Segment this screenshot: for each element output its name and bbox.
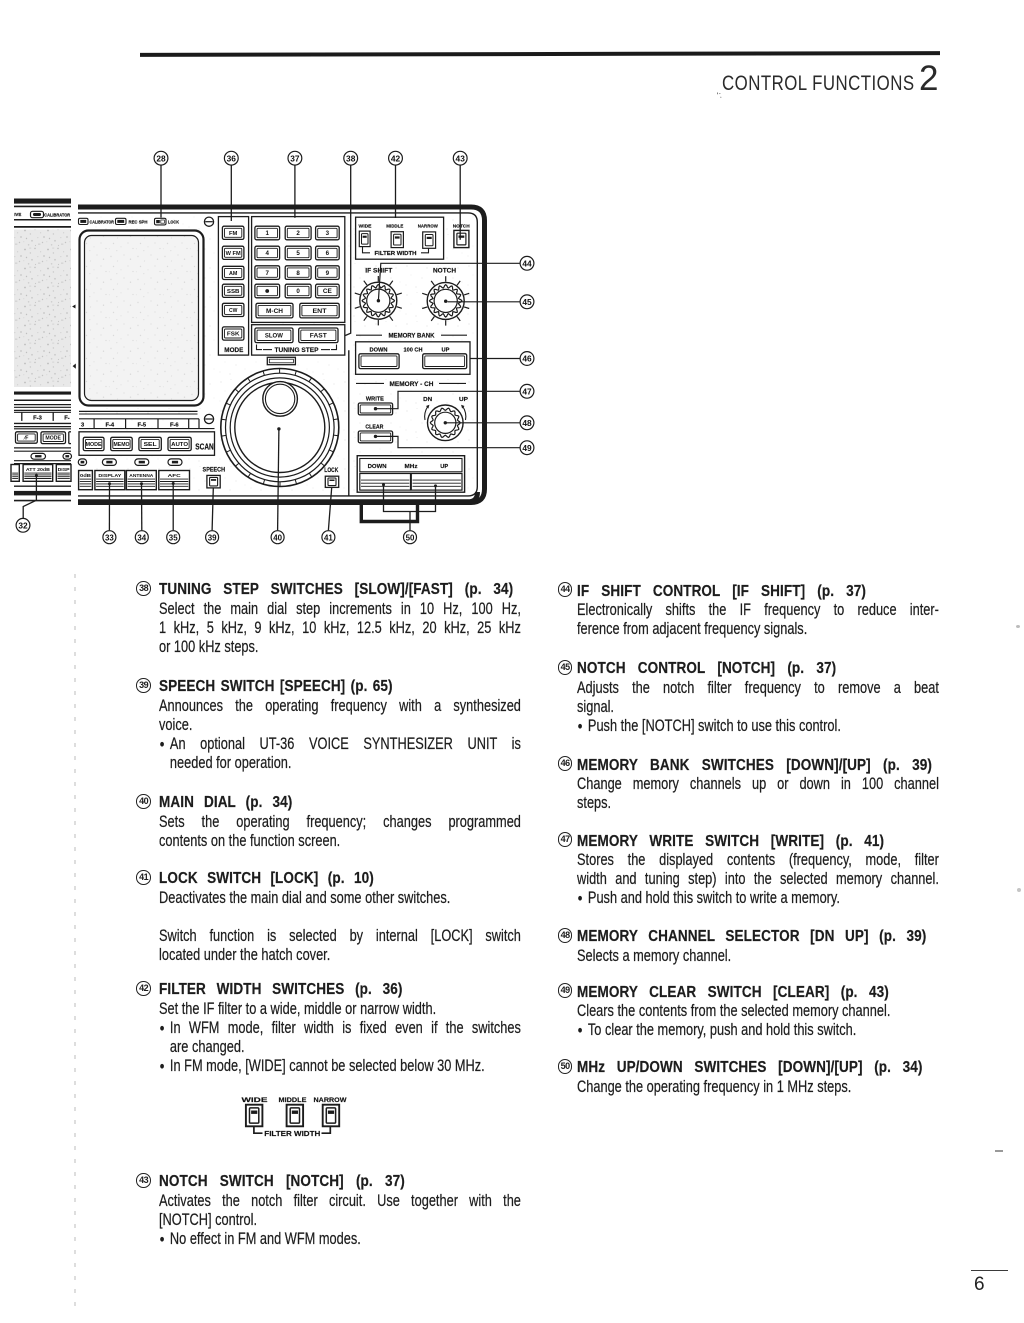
svg-text:DISP: DISP [58, 467, 70, 472]
svg-text:CLEAR: CLEAR [365, 425, 384, 431]
svg-text:49: 49 [522, 443, 532, 453]
svg-text:MIDDLE: MIDDLE [279, 1097, 307, 1104]
svg-text:38: 38 [346, 153, 356, 163]
svg-text:FILTER WIDTH: FILTER WIDTH [375, 251, 417, 257]
svg-text:48: 48 [522, 418, 532, 428]
svg-text:MODE: MODE [86, 442, 102, 448]
svg-text:33: 33 [105, 532, 114, 542]
svg-text:MEMO: MEMO [114, 442, 130, 448]
svg-text:AUTO: AUTO [171, 442, 188, 448]
svg-text:1: 1 [265, 230, 269, 237]
svg-text:34: 34 [137, 532, 146, 542]
svg-text:FM: FM [229, 231, 238, 237]
svg-text:50: 50 [406, 532, 415, 542]
svg-text:8: 8 [296, 270, 300, 277]
svg-text:W FM: W FM [226, 251, 241, 257]
svg-text:ANTENNA: ANTENNA [129, 473, 154, 479]
svg-text:0dB: 0dB [80, 473, 92, 479]
svg-text:TUNING STEP: TUNING STEP [275, 347, 319, 354]
svg-text:IF SHIFT: IF SHIFT [365, 267, 392, 274]
svg-text:CE: CE [323, 288, 332, 295]
svg-text:DISPLAY: DISPLAY [98, 473, 122, 479]
svg-text:IVE: IVE [14, 212, 21, 217]
svg-text:45: 45 [522, 297, 532, 307]
svg-text:F-4: F-4 [105, 423, 114, 429]
svg-text:36: 36 [227, 153, 237, 163]
svg-text:DOWN: DOWN [370, 348, 388, 354]
svg-text:SEL: SEL [144, 442, 158, 448]
svg-text:WIDE: WIDE [242, 1097, 269, 1104]
svg-text:SCAN: SCAN [195, 442, 214, 451]
svg-text:MODE: MODE [224, 347, 244, 354]
svg-text:41: 41 [324, 532, 333, 542]
svg-text:6: 6 [326, 250, 330, 257]
svg-text:MEMORY BANK: MEMORY BANK [389, 333, 435, 340]
svg-text:0: 0 [296, 288, 300, 295]
svg-text:100 CH: 100 CH [404, 348, 423, 354]
svg-text:2: 2 [296, 230, 300, 237]
svg-text:3: 3 [326, 230, 330, 237]
svg-text:SLOW: SLOW [265, 334, 283, 340]
svg-text:47: 47 [522, 386, 532, 396]
svg-text:4: 4 [265, 250, 269, 257]
svg-text:5: 5 [296, 250, 300, 257]
svg-text:M-CH: M-CH [266, 309, 283, 315]
svg-text:UP: UP [440, 464, 448, 470]
svg-text:NOTCH: NOTCH [453, 223, 471, 229]
svg-text:39: 39 [208, 532, 217, 542]
svg-text:CALIBRATOR: CALIBRATOR [44, 212, 71, 217]
svg-text:ATT 20dB: ATT 20dB [26, 467, 51, 472]
svg-text:28: 28 [156, 153, 166, 163]
svg-text:AM: AM [229, 271, 238, 277]
svg-text:F-3: F-3 [33, 415, 42, 421]
svg-text:LOCK: LOCK [324, 467, 338, 474]
svg-text:WIDE: WIDE [359, 223, 373, 229]
svg-text:REC SPH: REC SPH [129, 220, 148, 225]
svg-text:35: 35 [169, 532, 178, 542]
svg-text:NARROW: NARROW [418, 223, 438, 229]
svg-text:46: 46 [522, 354, 532, 364]
svg-text:UP: UP [442, 348, 450, 354]
svg-text:42: 42 [391, 153, 401, 163]
svg-text:37: 37 [290, 153, 300, 163]
svg-text:F-: F- [64, 415, 70, 421]
svg-text:SSB: SSB [227, 289, 240, 295]
svg-text:CALIBRATOR: CALIBRATOR [90, 220, 115, 225]
svg-text:MODE: MODE [45, 436, 61, 442]
svg-text:⁄F: ⁄F [23, 435, 28, 441]
svg-text:43: 43 [456, 153, 466, 163]
svg-text:ENT: ENT [313, 309, 327, 315]
svg-text:7: 7 [265, 270, 269, 277]
svg-text:MEMORY - CH: MEMORY - CH [390, 381, 434, 388]
svg-text:SPEECH: SPEECH [203, 467, 226, 474]
svg-text:FILTER WIDTH: FILTER WIDTH [264, 1131, 320, 1138]
svg-text:DOWN: DOWN [368, 464, 387, 470]
svg-text:FAST: FAST [310, 334, 327, 340]
svg-text:F-6: F-6 [170, 423, 179, 429]
svg-text:WRITE: WRITE [366, 397, 384, 403]
svg-text:FSK: FSK [227, 332, 240, 338]
svg-text:40: 40 [273, 532, 282, 542]
svg-text:44: 44 [522, 258, 532, 268]
svg-text:DN: DN [423, 397, 432, 403]
svg-text:MIDDLE: MIDDLE [386, 223, 404, 229]
svg-text:AFC: AFC [168, 473, 182, 479]
svg-text:UP: UP [459, 397, 468, 403]
svg-text:F-5: F-5 [137, 423, 146, 429]
svg-text:NARROW: NARROW [314, 1097, 348, 1104]
svg-text:9: 9 [326, 270, 330, 277]
svg-text:CW: CW [229, 308, 238, 314]
svg-text:32: 32 [18, 520, 28, 530]
svg-text:NOTCH: NOTCH [433, 267, 456, 274]
svg-text:MHz: MHz [405, 464, 418, 470]
svg-text:LOCK: LOCK [168, 220, 179, 225]
